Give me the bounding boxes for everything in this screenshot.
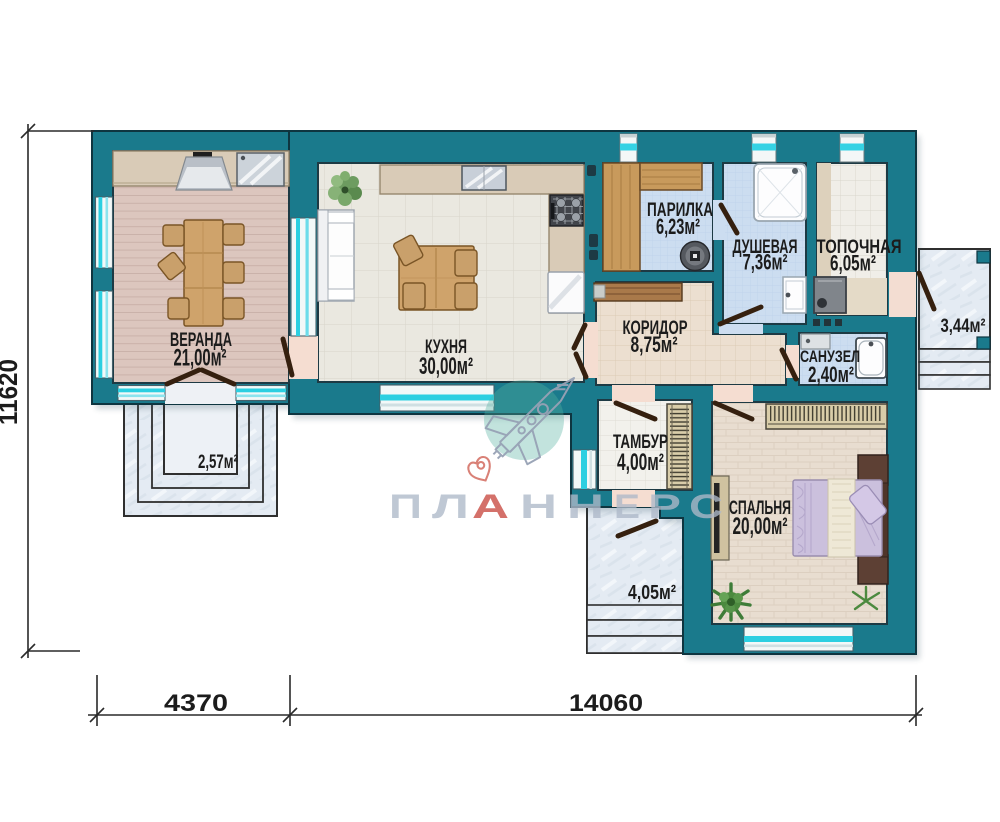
svg-text:Н: Н — [567, 488, 604, 526]
svg-text:Н: Н — [520, 488, 557, 526]
svg-text:А: А — [472, 488, 509, 526]
svg-text:Р: Р — [648, 488, 681, 526]
svg-text:21,00м²: 21,00м² — [174, 345, 227, 372]
svg-text:Е: Е — [614, 488, 640, 526]
svg-text:2,40м²: 2,40м² — [808, 362, 854, 387]
svg-text:6,05м²: 6,05м² — [830, 251, 876, 276]
svg-text:11620: 11620 — [0, 359, 23, 425]
svg-text:4370: 4370 — [164, 690, 228, 717]
svg-text:20,00м²: 20,00м² — [733, 513, 788, 540]
svg-text:14060: 14060 — [569, 690, 643, 717]
svg-text:7,36м²: 7,36м² — [743, 250, 788, 275]
svg-text:4,05м²: 4,05м² — [628, 582, 676, 604]
svg-text:Л: Л — [432, 488, 469, 526]
svg-text:С: С — [689, 488, 723, 526]
svg-text:2,57м²: 2,57м² — [198, 452, 238, 473]
svg-text:3,44м²: 3,44м² — [941, 316, 986, 337]
svg-text:30,00м²: 30,00м² — [419, 353, 473, 380]
svg-text:6,23м²: 6,23м² — [656, 214, 700, 239]
svg-text:4,00м²: 4,00м² — [617, 449, 664, 476]
svg-text:8,75м²: 8,75м² — [631, 332, 678, 357]
svg-text:П: П — [389, 488, 422, 526]
